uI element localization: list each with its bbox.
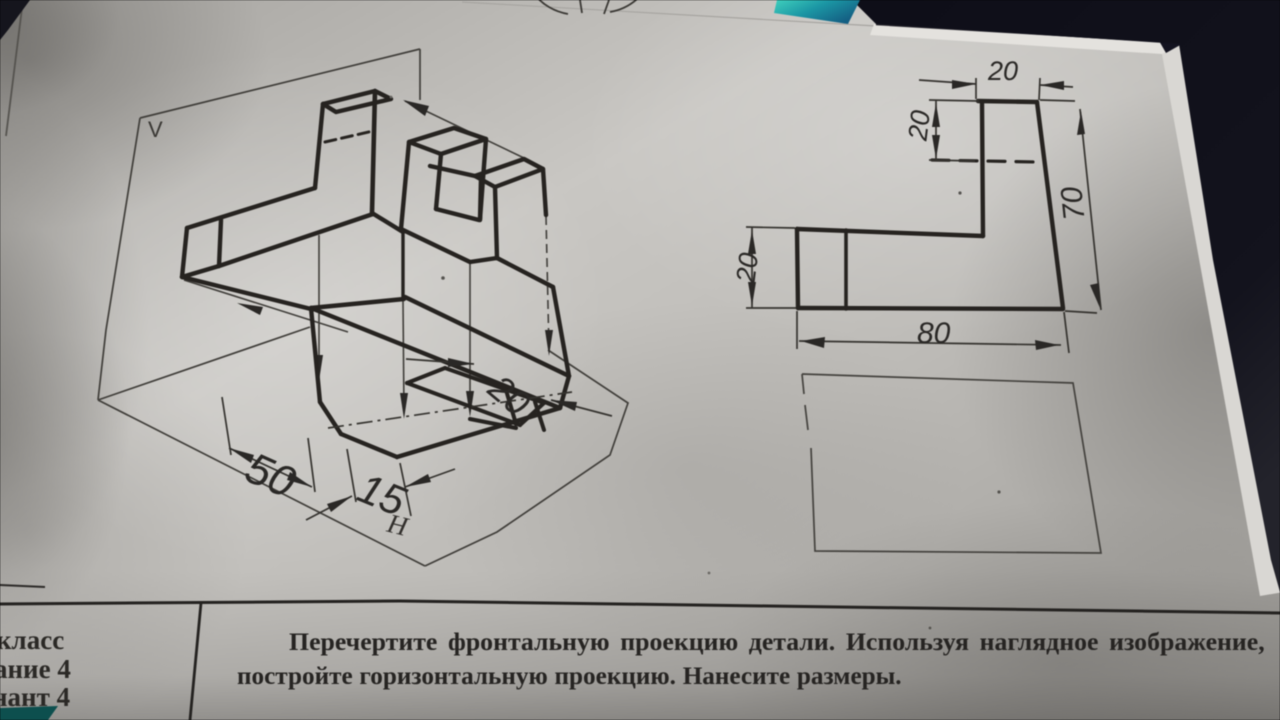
svg-text:20: 20 xyxy=(902,109,936,143)
svg-text:20: 20 xyxy=(730,251,764,285)
svg-text:20: 20 xyxy=(987,56,1018,86)
svg-text:нант 4: нант 4 xyxy=(0,682,70,712)
svg-text:Перечертите фронтальную проекц: Перечертите фронтальную проекцию детали.… xyxy=(289,627,1265,656)
svg-text:класс: класс xyxy=(0,625,64,655)
svg-text:V: V xyxy=(148,117,163,142)
svg-text:ание 4: ание 4 xyxy=(0,654,71,684)
svg-text:80: 80 xyxy=(917,317,951,350)
svg-text:70: 70 xyxy=(1055,185,1091,222)
svg-text:постройте горизонтальную проек: постройте горизонтальную проекцию. Нанес… xyxy=(237,663,902,690)
